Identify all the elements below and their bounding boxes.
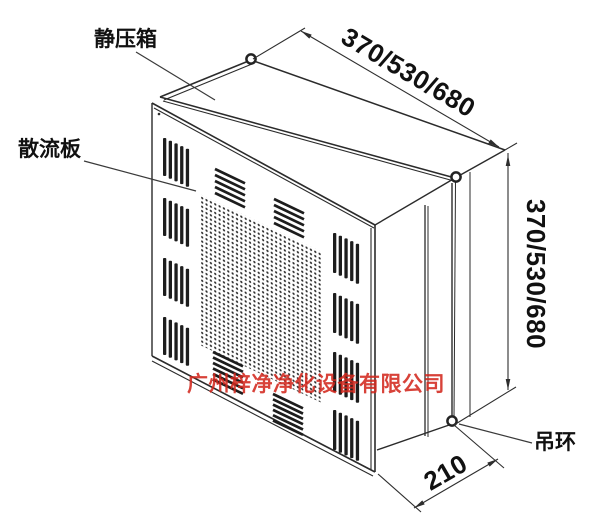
dimension-right-text: 370/530/680: [521, 199, 551, 349]
leader-line: [459, 424, 532, 443]
label-lifting-ring: 吊环: [534, 431, 576, 454]
dimension-bottom-text: 210: [419, 448, 473, 496]
technical-drawing-canvas: 370/530/680 370/530/680 210 静压箱 散流板 吊环 广…: [0, 0, 600, 530]
plenum-box-drawing: 370/530/680 370/530/680 210 静压箱 散流板 吊环 广…: [0, 0, 600, 530]
arrowhead: [506, 155, 511, 166]
corner-screw-dot: [158, 113, 161, 116]
watermark-text: 广州梓净净化设备有限公司: [187, 372, 445, 396]
dimension-right-height: 370/530/680: [454, 153, 551, 425]
label-diffuser-plate: 散流板: [18, 137, 82, 161]
arrowhead: [506, 379, 511, 390]
lifting-ring-icon: [451, 172, 460, 181]
arrowhead: [487, 459, 498, 467]
arrowhead: [301, 31, 312, 39]
label-plenum-box: 静压箱: [94, 27, 157, 51]
lifting-ring-icon: [246, 54, 255, 63]
arrowhead: [414, 500, 425, 508]
